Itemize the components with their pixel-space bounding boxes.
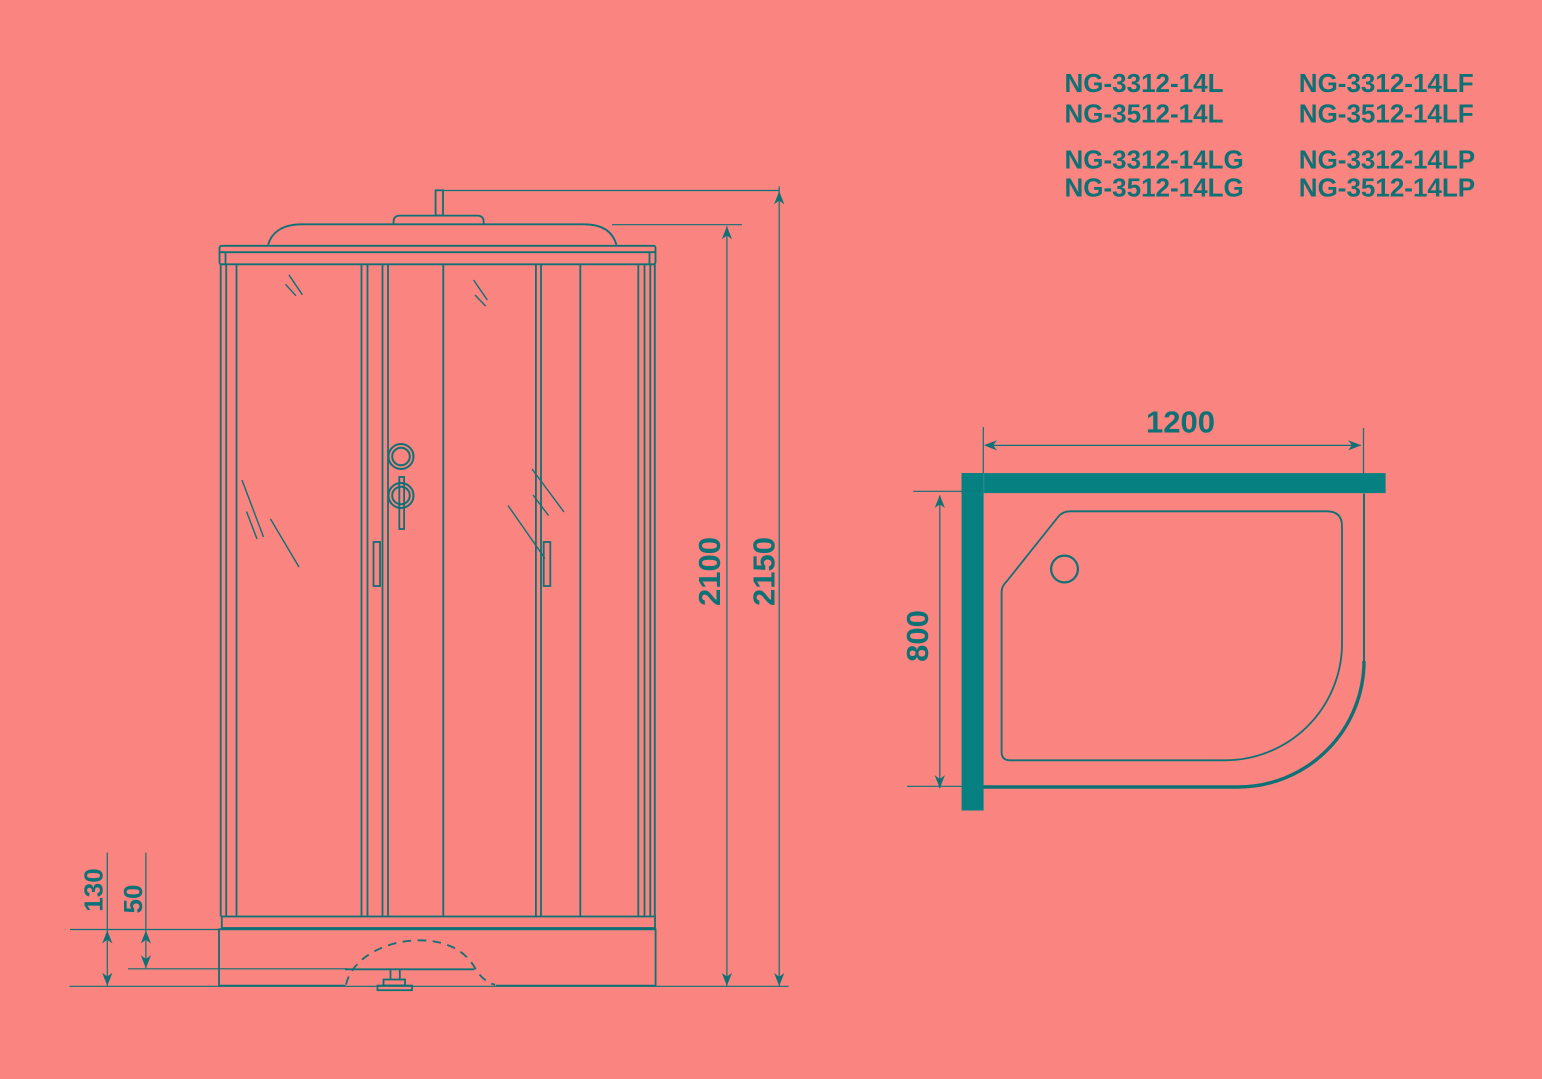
svg-text:NG-3512-14L: NG-3512-14L (1065, 98, 1224, 128)
svg-text:NG-3312-14LP: NG-3312-14LP (1299, 144, 1475, 174)
svg-text:NG-3312-14L: NG-3312-14L (1065, 68, 1224, 98)
svg-text:1200: 1200 (1146, 404, 1215, 439)
svg-text:50: 50 (118, 885, 148, 914)
svg-text:NG-3312-14LF: NG-3312-14LF (1299, 68, 1474, 98)
svg-text:2150: 2150 (746, 537, 781, 606)
svg-text:2100: 2100 (692, 537, 727, 606)
svg-text:NG-3512-14LF: NG-3512-14LF (1299, 98, 1474, 128)
svg-text:NG-3512-14LG: NG-3512-14LG (1065, 173, 1244, 203)
svg-text:800: 800 (900, 610, 935, 662)
svg-text:130: 130 (79, 868, 109, 911)
svg-text:NG-3512-14LP: NG-3512-14LP (1299, 173, 1475, 203)
svg-text:NG-3312-14LG: NG-3312-14LG (1065, 144, 1244, 174)
